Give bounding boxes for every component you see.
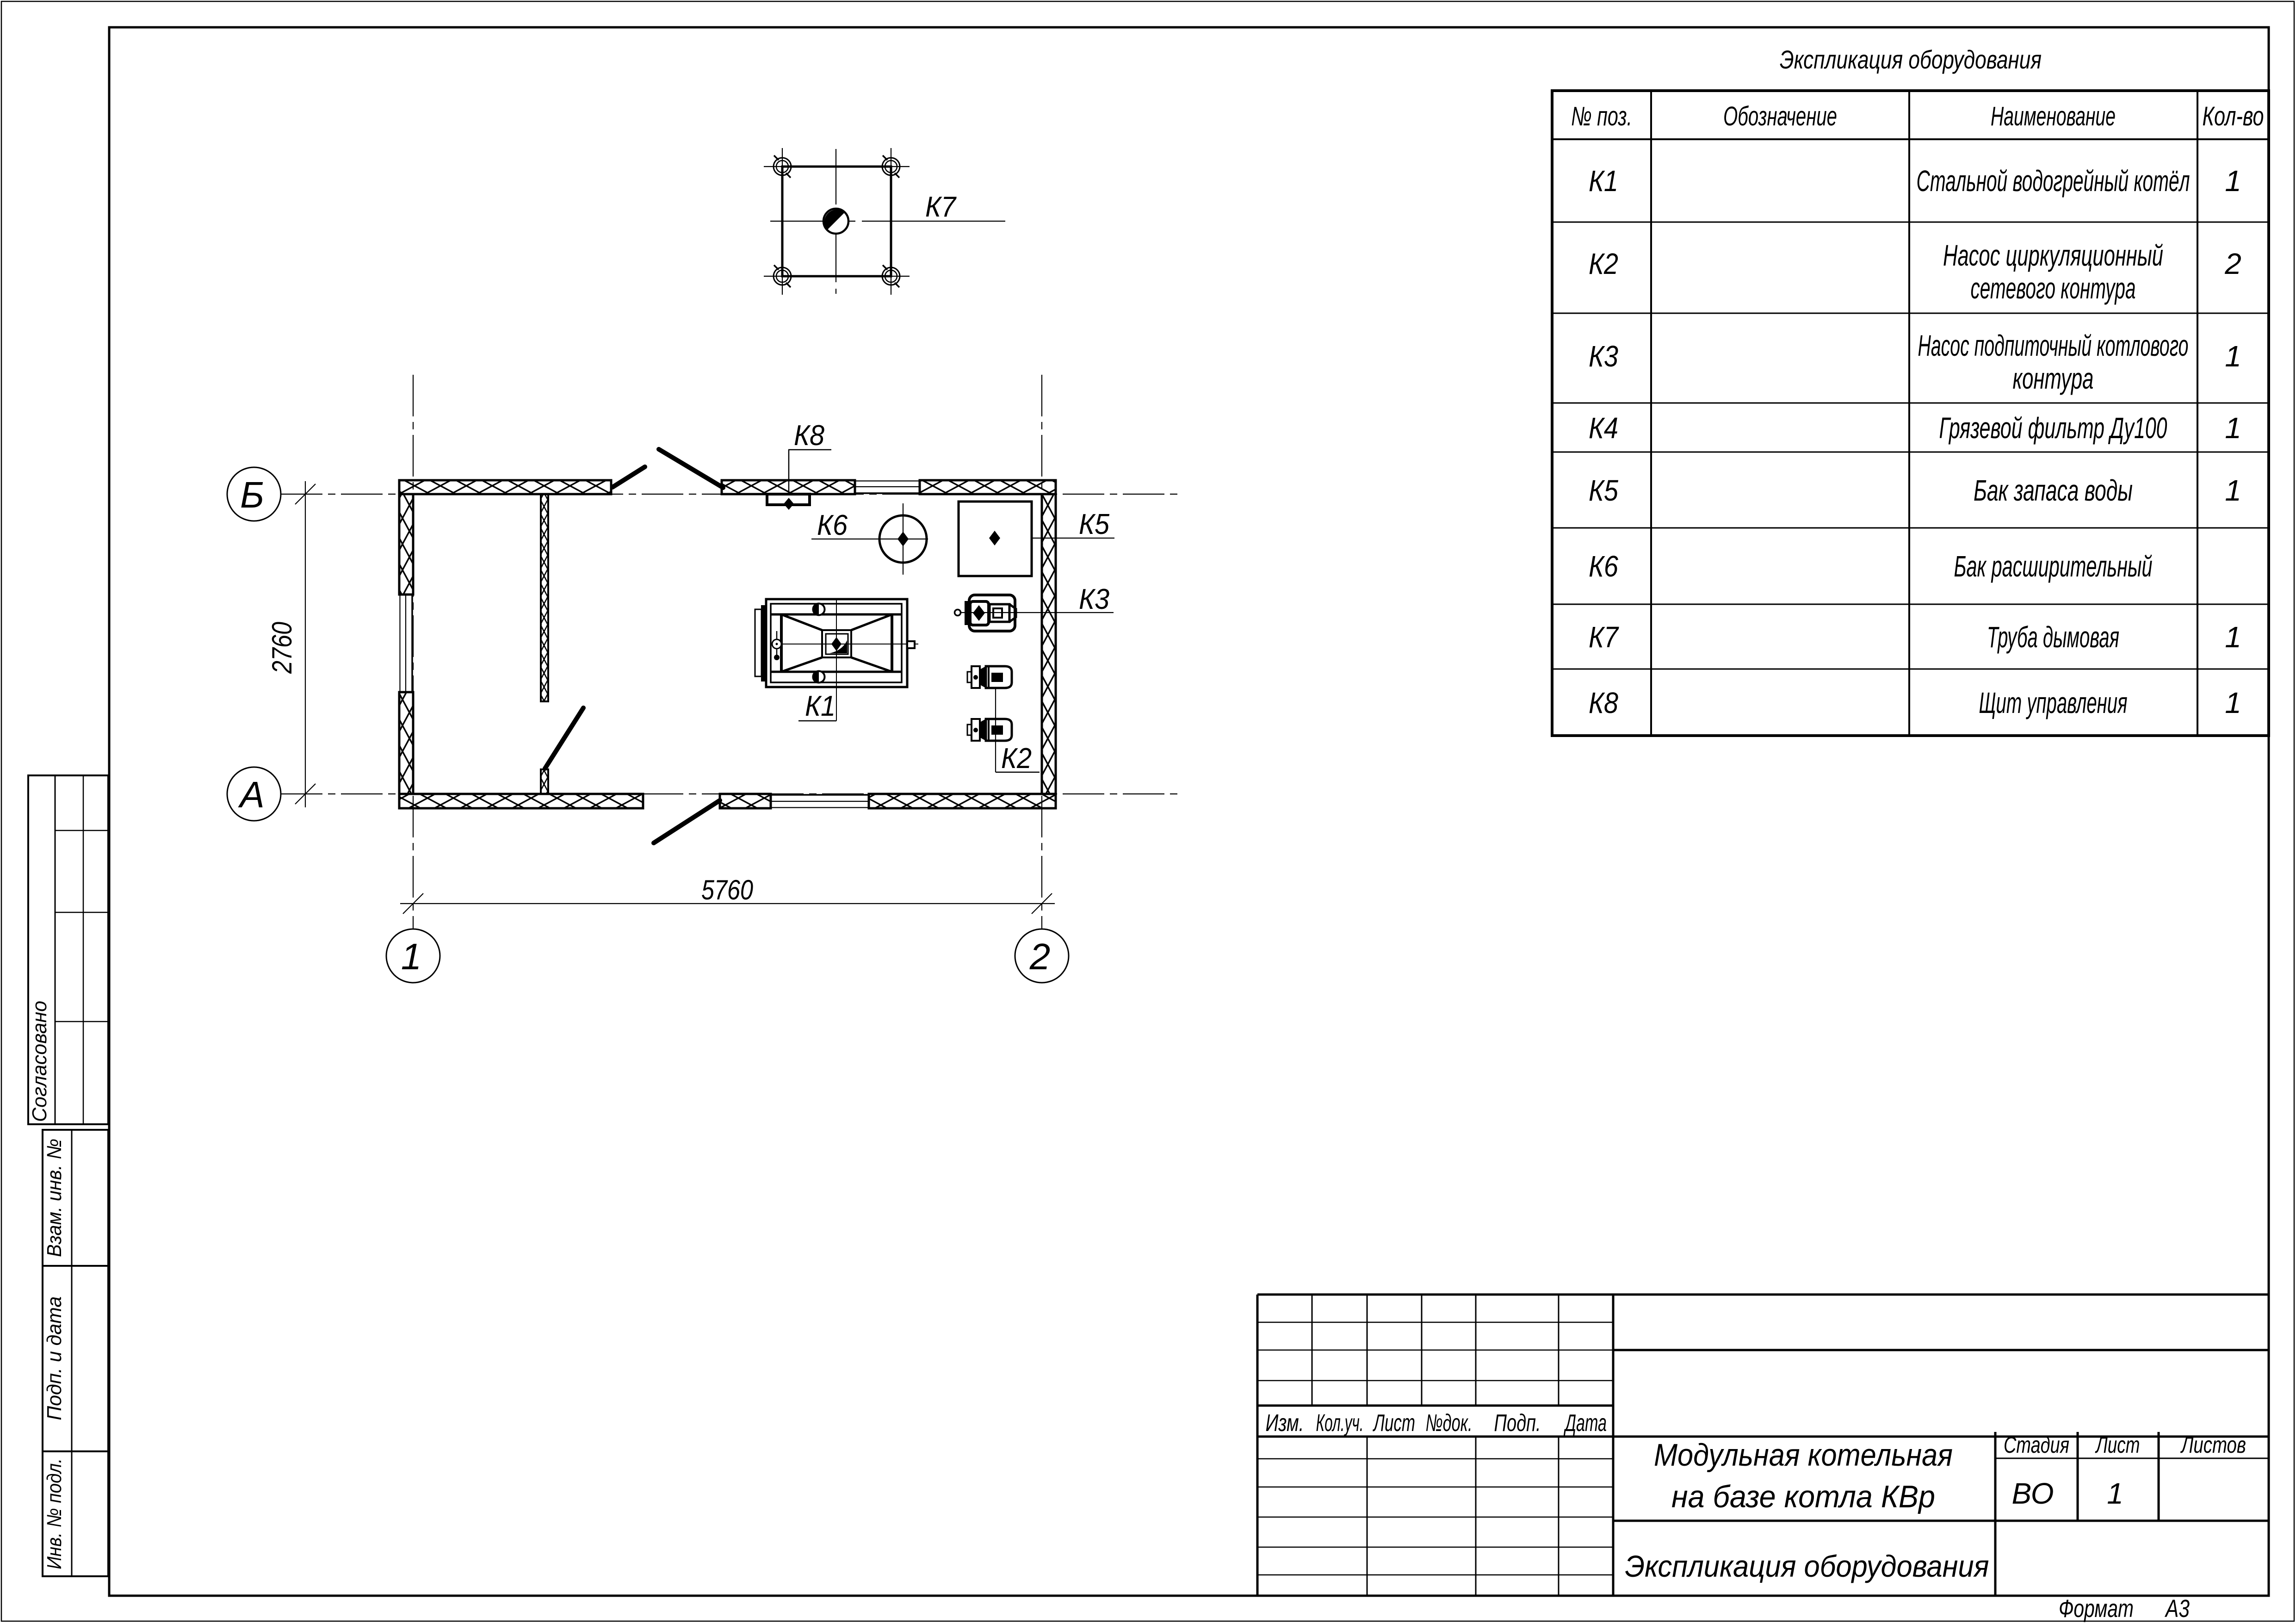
svg-text:1: 1 bbox=[2225, 620, 2241, 654]
svg-text:К8: К8 bbox=[1589, 686, 1618, 719]
svg-text:Бак запаса воды: Бак запаса воды bbox=[1974, 474, 2133, 507]
svg-text:Экспликация оборудования: Экспликация оборудования bbox=[1780, 45, 2042, 74]
svg-text:Подп.: Подп. bbox=[1494, 1410, 1541, 1437]
svg-text:К6: К6 bbox=[817, 509, 848, 541]
svg-text:К2: К2 bbox=[1589, 247, 1618, 280]
svg-text:1: 1 bbox=[401, 936, 422, 977]
svg-text:Бак расширительный: Бак расширительный bbox=[1954, 550, 2153, 583]
svg-text:Инв. № подл.: Инв. № подл. bbox=[43, 1458, 66, 1569]
svg-text:сетевого контура: сетевого контура bbox=[1971, 272, 2136, 305]
svg-text:К6: К6 bbox=[1589, 550, 1618, 583]
svg-text:Изм.: Изм. bbox=[1266, 1410, 1304, 1437]
svg-text:на базе котла КВр: на базе котла КВр bbox=[1671, 1479, 1935, 1514]
svg-text:Щит управления: Щит управления bbox=[1979, 686, 2128, 719]
svg-text:ВО: ВО bbox=[2011, 1477, 2054, 1510]
svg-text:Насос подпиточный котлового: Насос подпиточный котлового bbox=[1918, 329, 2189, 362]
svg-text:1: 1 bbox=[2107, 1477, 2123, 1510]
svg-text:Кол-во: Кол-во bbox=[2203, 101, 2264, 131]
svg-text:Стадия: Стадия bbox=[2004, 1432, 2069, 1458]
svg-text:Б: Б bbox=[240, 474, 264, 515]
svg-text:Взам. инв. №: Взам. инв. № bbox=[43, 1139, 66, 1257]
svg-text:2: 2 bbox=[1029, 936, 1051, 977]
svg-text:Дата: Дата bbox=[1564, 1410, 1607, 1437]
svg-text:№док.: №док. bbox=[1426, 1410, 1473, 1437]
svg-text:№ поз.: № поз. bbox=[1571, 101, 1632, 131]
svg-text:1: 1 bbox=[2225, 686, 2241, 719]
svg-text:Согласовано: Согласовано bbox=[28, 1001, 51, 1122]
svg-text:Подп. и дата: Подп. и дата bbox=[43, 1296, 66, 1420]
svg-text:К2: К2 bbox=[1001, 743, 1032, 774]
svg-text:А: А bbox=[238, 774, 264, 815]
svg-text:К5: К5 bbox=[1589, 474, 1618, 507]
svg-text:Труба дымовая: Труба дымовая bbox=[1987, 620, 2119, 654]
svg-text:Формат: Формат bbox=[2059, 1595, 2134, 1623]
svg-text:2760: 2760 bbox=[266, 622, 297, 674]
svg-text:2: 2 bbox=[2224, 247, 2241, 280]
svg-text:Обозначение: Обозначение bbox=[1723, 101, 1837, 131]
svg-text:1: 1 bbox=[2225, 411, 2241, 445]
svg-text:5760: 5760 bbox=[701, 874, 753, 905]
svg-text:Насос циркуляционный: Насос циркуляционный bbox=[1943, 239, 2163, 272]
svg-text:Стальной водогрейный котёл: Стальной водогрейный котёл bbox=[1917, 164, 2190, 198]
svg-text:К4: К4 bbox=[1589, 411, 1618, 445]
svg-text:К7: К7 bbox=[1589, 620, 1619, 654]
svg-text:К5: К5 bbox=[1079, 508, 1109, 540]
svg-text:Лист: Лист bbox=[1373, 1410, 1415, 1437]
svg-text:А3: А3 bbox=[2165, 1595, 2190, 1623]
svg-text:Кол.уч.: Кол.уч. bbox=[1316, 1410, 1364, 1437]
svg-text:К3: К3 bbox=[1589, 340, 1618, 373]
svg-text:Грязевой фильтр Ду100: Грязевой фильтр Ду100 bbox=[1939, 411, 2167, 445]
svg-text:Экспликация оборудования: Экспликация оборудования bbox=[1625, 1549, 1989, 1583]
svg-text:1: 1 bbox=[2225, 474, 2241, 507]
svg-text:Лист: Лист bbox=[2095, 1432, 2140, 1458]
svg-text:Листов: Листов bbox=[2180, 1432, 2246, 1458]
svg-text:К3: К3 bbox=[1079, 583, 1109, 615]
svg-text:Наименование: Наименование bbox=[1991, 101, 2116, 131]
svg-text:К1: К1 bbox=[1589, 164, 1618, 198]
svg-text:К1: К1 bbox=[805, 690, 835, 722]
svg-text:1: 1 bbox=[2225, 164, 2241, 198]
svg-text:Модульная котельная: Модульная котельная bbox=[1654, 1437, 1953, 1473]
svg-text:контура: контура bbox=[2013, 362, 2094, 395]
svg-text:1: 1 bbox=[2225, 340, 2241, 373]
svg-text:К7: К7 bbox=[925, 191, 957, 223]
svg-text:К8: К8 bbox=[794, 420, 824, 452]
